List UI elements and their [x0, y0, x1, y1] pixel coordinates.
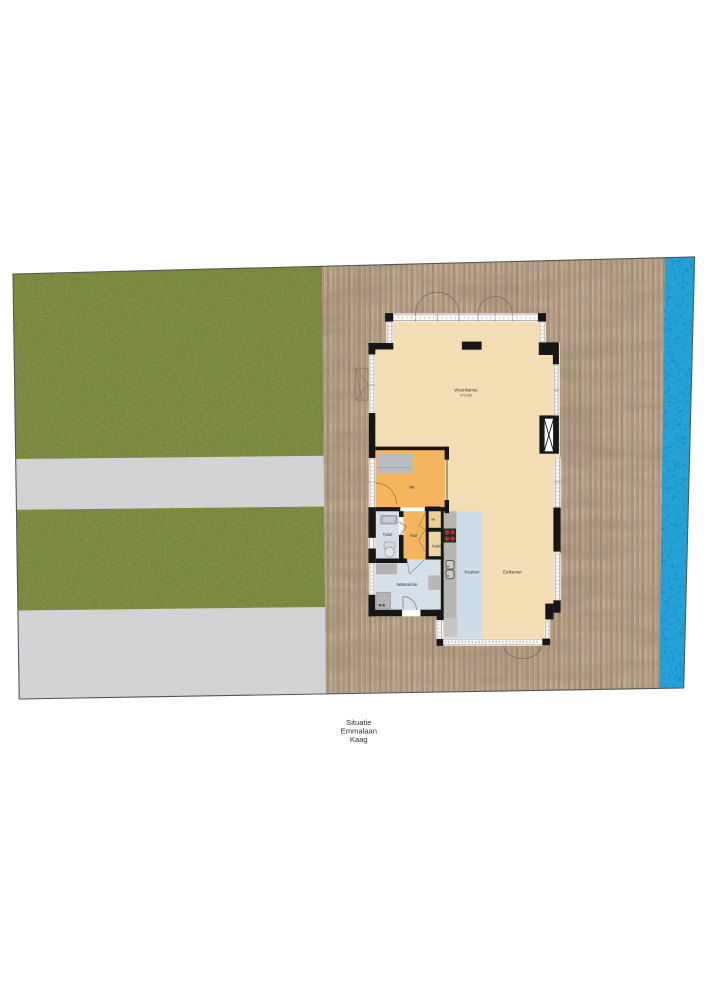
svg-text:Pk: Pk — [409, 485, 415, 490]
svg-text:Toilet: Toilet — [383, 532, 394, 537]
svg-text:Kaag: Kaag — [350, 735, 368, 744]
svg-text:h=2,9m: h=2,9m — [460, 394, 472, 398]
svg-text:mk: mk — [431, 518, 436, 522]
svg-text:Keuken: Keuken — [465, 570, 480, 575]
svg-text:Wasruimte: Wasruimte — [397, 582, 418, 587]
svg-text:Eetkamer: Eetkamer — [503, 570, 522, 575]
svg-text:Woonkamer: Woonkamer — [454, 388, 478, 393]
svg-text:Kast: Kast — [432, 544, 441, 549]
svg-text:Hal: Hal — [410, 533, 417, 538]
